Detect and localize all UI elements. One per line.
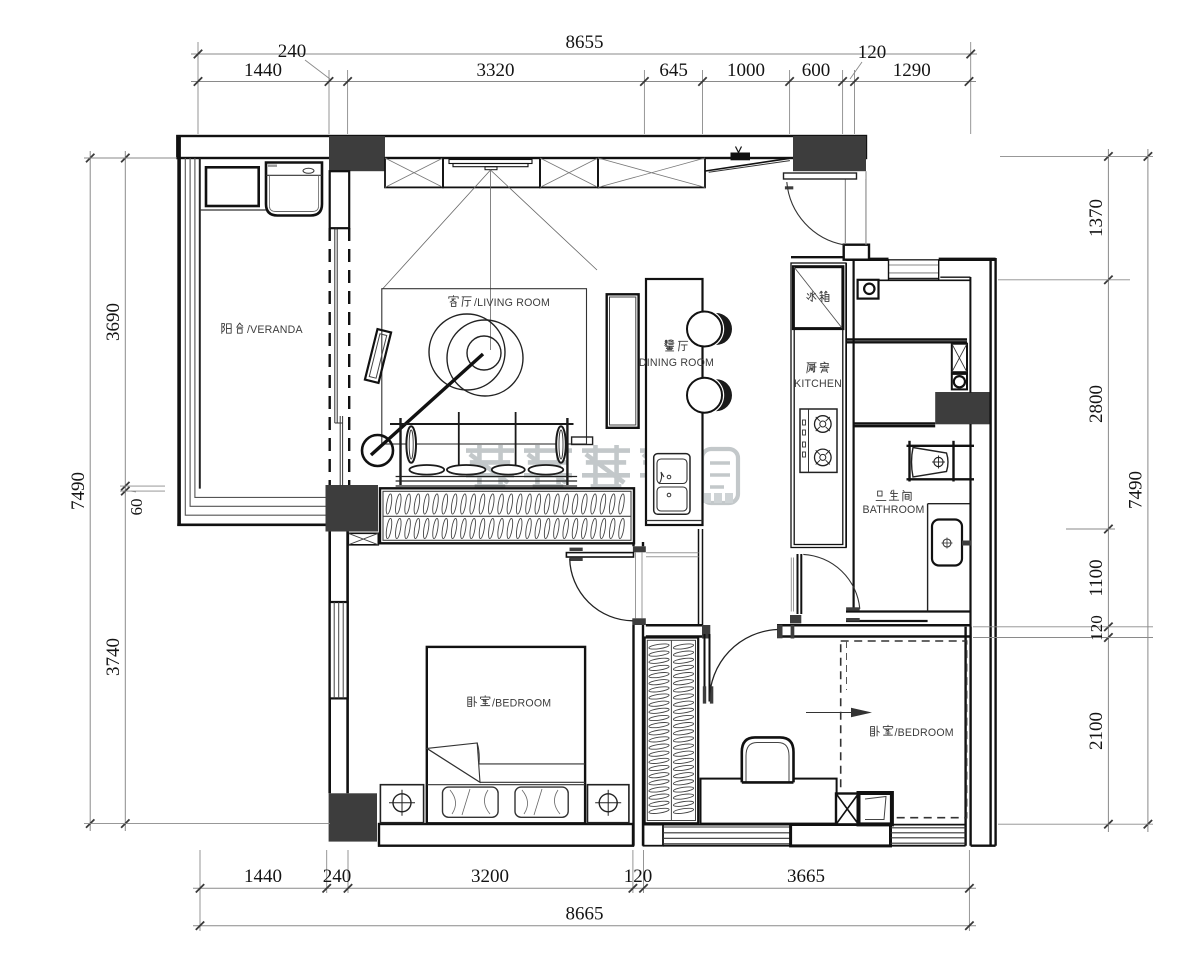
svg-text:600: 600 <box>802 60 831 81</box>
svg-text:DINING ROOM: DINING ROOM <box>639 357 714 369</box>
svg-text:BATHROOM: BATHROOM <box>862 504 924 516</box>
svg-text:8655: 8655 <box>566 32 604 53</box>
svg-text:1440: 1440 <box>244 866 282 887</box>
svg-text:7490: 7490 <box>68 472 89 510</box>
svg-text:8665: 8665 <box>566 904 604 925</box>
svg-text:60: 60 <box>127 499 146 516</box>
svg-text:1000: 1000 <box>727 60 765 81</box>
svg-text:120: 120 <box>624 866 653 887</box>
svg-text:1440: 1440 <box>244 60 282 81</box>
svg-text:7490: 7490 <box>1126 471 1147 509</box>
svg-text:2100: 2100 <box>1086 712 1107 750</box>
svg-text:645: 645 <box>659 60 688 81</box>
svg-text:120: 120 <box>858 42 887 63</box>
svg-text:1370: 1370 <box>1086 199 1107 237</box>
svg-text:3200: 3200 <box>471 866 509 887</box>
svg-text:120: 120 <box>1087 615 1106 641</box>
svg-text:/VERANDA: /VERANDA <box>247 324 303 336</box>
svg-text:3320: 3320 <box>477 60 515 81</box>
svg-text:2800: 2800 <box>1086 385 1107 423</box>
svg-text:/BEDROOM: /BEDROOM <box>895 727 954 739</box>
svg-text:/BEDROOM: /BEDROOM <box>492 698 551 710</box>
svg-text:240: 240 <box>323 866 352 887</box>
svg-text:1290: 1290 <box>893 60 931 81</box>
svg-text:3665: 3665 <box>787 866 825 887</box>
svg-text:1100: 1100 <box>1086 559 1107 596</box>
svg-text:3740: 3740 <box>103 638 124 676</box>
svg-text:/LIVING ROOM: /LIVING ROOM <box>474 297 550 309</box>
svg-text:240: 240 <box>278 41 307 62</box>
svg-text:KITCHEN: KITCHEN <box>794 378 842 390</box>
svg-text:3690: 3690 <box>103 303 124 341</box>
